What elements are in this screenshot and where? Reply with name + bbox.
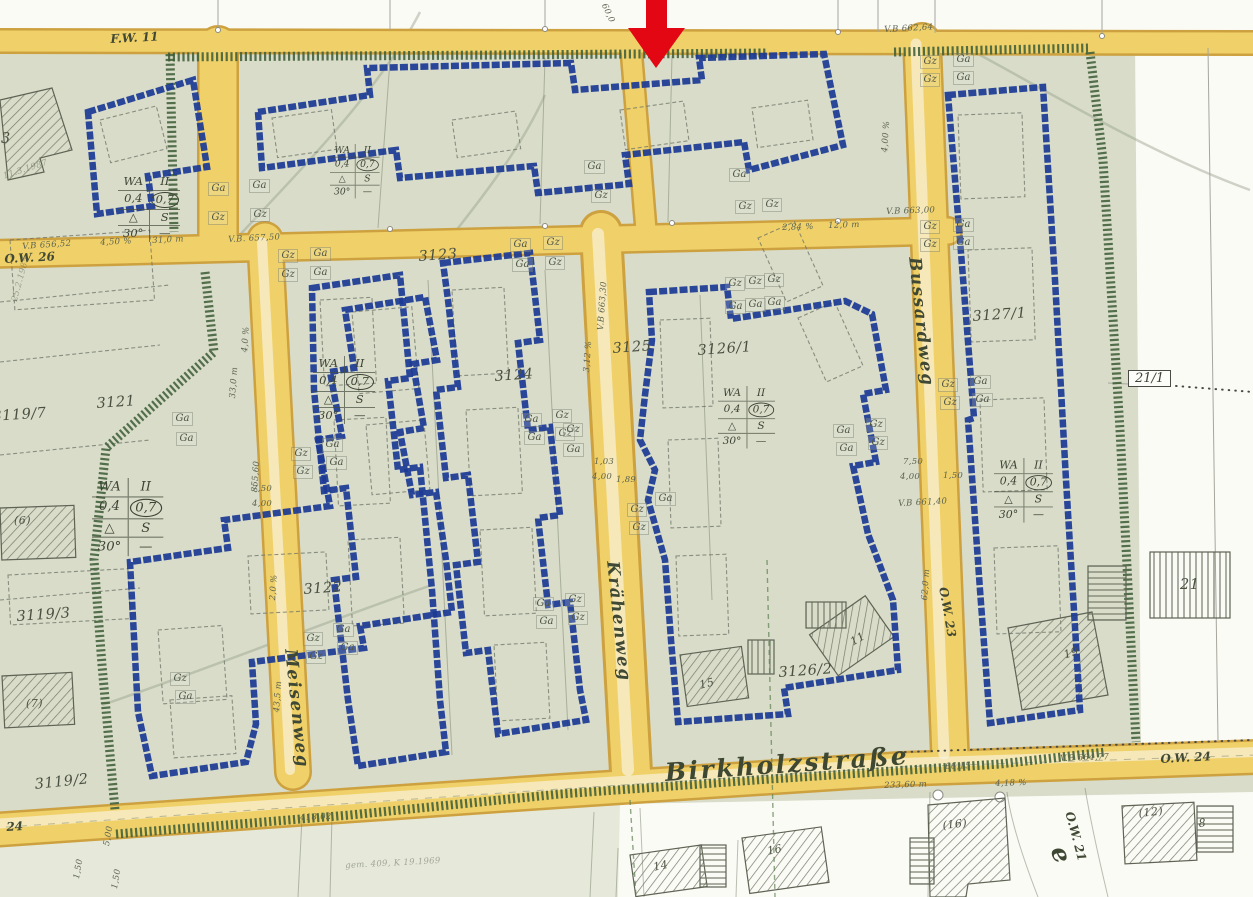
street-label: O.W. 23 (936, 586, 959, 638)
garage-label: Ga (337, 641, 358, 655)
zoning-signature-box: WAII0,40,7△S30°— (92, 478, 163, 556)
garage-label: Gz (764, 273, 784, 287)
dimension-label: 60,0 (599, 2, 617, 24)
zoning-value: — (150, 226, 181, 242)
zoning-value: — (128, 538, 163, 556)
garage-label: Ga (764, 296, 785, 310)
garage-label: Gz (920, 238, 940, 252)
zoning-value: S (1024, 492, 1053, 507)
dimension-label: 33,0 m (228, 367, 240, 399)
dimension-label: 7,50 (252, 484, 272, 494)
garage-label: Gz (303, 632, 323, 646)
garage-label: Gz (545, 256, 565, 270)
dimension-label: 2,84 % (782, 222, 814, 233)
garage-label: Ga (953, 236, 974, 250)
street-label: F.W. 11 (110, 29, 159, 46)
dimension-label: 5,00 (102, 825, 115, 847)
zoning-map: F.W. 11O.W. 26MeisenwegKrähenwegBussardw… (0, 0, 1253, 897)
zoning-value: 0,7 (150, 191, 181, 209)
dimension-label: 62,0 m (920, 569, 932, 601)
garage-label: Gz (278, 249, 298, 263)
garage-label: Ga (655, 492, 676, 506)
zoning-value: 30° (994, 508, 1024, 523)
garage-label: Ga (836, 442, 857, 456)
parcel-label: 3126/1 (697, 339, 752, 359)
parcel-label: 16 (766, 842, 783, 858)
zoning-value: 0,4 (994, 474, 1024, 491)
garage-label: Gz (940, 396, 960, 410)
garage-label: Gz (920, 220, 940, 234)
dimension-label: 4,18 % (995, 778, 1027, 789)
zoning-value: 30° (718, 434, 747, 449)
parcel-label: 3 (1, 131, 11, 147)
garage-label: Gz (208, 211, 228, 225)
garage-label: Ga (172, 412, 193, 426)
garage-label: Ga (524, 431, 545, 445)
zoning-value: 0,4 (718, 401, 747, 417)
garage-label: Ga (725, 300, 746, 314)
parcel-label: 21 (1180, 577, 1199, 593)
zoning-signature-box: WAII0,40,7△S30°— (118, 174, 180, 242)
garage-label: Gz (293, 465, 313, 479)
zoning-value: — (355, 186, 379, 199)
zoning-value: 30° (330, 186, 355, 199)
parcel-label: (6) (14, 514, 31, 527)
noise-triangle-icon: △ (118, 210, 150, 226)
zoning-value: 0,7 (128, 497, 163, 517)
garage-label: Ga (326, 456, 347, 470)
zoning-value: 0,7 (747, 401, 775, 417)
dimension-label: 1,03 (594, 457, 614, 467)
zoning-value: 0,4 (92, 497, 128, 517)
garage-label: Ga (953, 53, 974, 67)
dimension-label: 4,00 (900, 472, 920, 482)
dimension-label: V.B 661,40 (898, 496, 948, 509)
parcel-label: 3125 (612, 338, 652, 357)
garage-label: Ga (510, 238, 531, 252)
dimension-label: 4,00 % (880, 121, 892, 153)
dimension-label: 1,50 (72, 858, 85, 880)
garage-label: Ga (584, 160, 605, 174)
dimension-label: V.B 664,77 (1060, 752, 1109, 764)
zoning-value: II (345, 356, 376, 372)
garage-label: Ga (970, 375, 991, 389)
zoning-value: 0,4 (118, 191, 150, 209)
garage-label: Gz (627, 503, 647, 517)
zoning-value: S (150, 210, 181, 226)
garage-label: Ga (512, 258, 533, 272)
parcel-label: 3119/7 (0, 405, 47, 425)
garage-label: Ga (729, 168, 750, 182)
garage-label: Gz (170, 672, 190, 686)
parcel-label: 3126/2 (778, 661, 833, 681)
dimension-label: V.B 663,00 (886, 205, 935, 217)
street-label: Birkholzstraße (664, 741, 910, 787)
dimension-label: 1,50 (943, 471, 963, 481)
street-label: Meisenweg (280, 648, 312, 769)
parcel-label: 11 (848, 630, 867, 649)
zoning-value: 0,7 (1024, 474, 1053, 491)
parcel-label: 14 (652, 858, 669, 874)
garage-label: Gz (563, 423, 583, 437)
garage-label: Ga (521, 413, 542, 427)
garage-label: Ga (953, 218, 974, 232)
garage-label: Gz (920, 55, 940, 69)
parcel-label: (16) (942, 816, 968, 831)
zoning-signature-box: WAII0,40,7△S30°— (994, 458, 1053, 523)
garage-label: Ga (333, 623, 354, 637)
noise-triangle-icon: △ (330, 172, 355, 185)
zoning-value: 0,7 (355, 157, 379, 171)
label-layer: F.W. 11O.W. 26MeisenwegKrähenwegBussardw… (0, 0, 1253, 897)
zoning-value: WA (92, 478, 128, 496)
street-label: Krähenweg (602, 560, 635, 683)
dimension-label: 2,0 % (268, 574, 280, 600)
noise-triangle-icon: △ (92, 519, 128, 537)
zoning-signature-box: WAII0,40,7△S30°— (313, 356, 375, 424)
zoning-value: II (747, 386, 775, 401)
garage-label: Gz (565, 593, 585, 607)
zoning-value: II (1024, 458, 1053, 473)
garage-label: Ga (175, 690, 196, 704)
zoning-signature-box: WAII0,40,7△S30°— (718, 386, 775, 449)
zoning-value: 30° (92, 538, 128, 556)
garage-label: Ga (972, 393, 993, 407)
zoning-value: S (128, 519, 163, 537)
garage-label: Ga (833, 424, 854, 438)
garage-label: Gz (291, 447, 311, 461)
zoning-value: II (128, 478, 163, 496)
zoning-value: WA (313, 356, 345, 372)
parcel-label: (7) (26, 697, 43, 710)
garage-label: Gz (762, 198, 782, 212)
garage-label: Gz (543, 236, 563, 250)
zoning-value: 0,4 (330, 157, 355, 171)
street-label: O.W. 24 (1160, 749, 1211, 766)
garage-label: Gz (866, 418, 886, 432)
parcel-label: 3121 (96, 393, 136, 412)
zoning-value: WA (118, 174, 150, 190)
zoning-value: — (747, 434, 775, 449)
dimension-label: 7,50 (903, 457, 923, 467)
parcel-label: 15 (698, 675, 716, 691)
dimension-label: 233,60 m (884, 780, 927, 791)
dimension-label: 4,0 % (240, 326, 252, 352)
garage-label: Gz (552, 409, 572, 423)
garage-label: Ga (745, 298, 766, 312)
dimension-label: 11.3.1987 (2, 158, 49, 182)
dimension-label: 1,50 (110, 868, 123, 890)
parcel-label: 3123 (418, 246, 458, 265)
zoning-value: II (150, 174, 181, 190)
zoning-value: 0,4 (313, 373, 345, 391)
zoning-value: 0,7 (345, 373, 376, 391)
garage-label: Gz (745, 275, 765, 289)
zoning-value: — (1024, 508, 1053, 523)
garage-label: Gz (938, 378, 958, 392)
dimension-label: 66,15 (945, 761, 971, 772)
parcel-label: 3122 (303, 579, 343, 598)
zoning-value: WA (994, 458, 1024, 473)
parcel-label: 3119/2 (34, 771, 89, 793)
dimension-label: 43,5 m (272, 681, 284, 713)
garage-label: Ga (249, 179, 270, 193)
parcel-label: 3124 (494, 366, 534, 385)
zoning-value: S (345, 392, 376, 408)
garage-label: Gz (591, 189, 611, 203)
garage-label: Ga (536, 615, 557, 629)
street-label: 24 (6, 819, 23, 834)
dimension-label: 1,89 (616, 475, 636, 485)
zoning-value: S (747, 419, 775, 434)
zoning-value: — (345, 408, 376, 424)
garage-label: Gz (306, 650, 326, 664)
dimension-label: V.B 663,30 (596, 281, 609, 331)
garage-label: Ga (176, 432, 197, 446)
zoning-value: 30° (313, 408, 345, 424)
dimension-label: 418,02 (300, 812, 332, 823)
garage-label: Ga (322, 438, 343, 452)
garage-label: Ga (310, 266, 331, 280)
street-label: Bussardweg (904, 256, 937, 387)
parcel-label: 19 (1062, 644, 1080, 661)
garage-label: Ga (533, 597, 554, 611)
parcel-label: 8 (1198, 816, 1207, 830)
garage-label: Gz (568, 611, 588, 625)
dimension-label: V.B 662,64 (884, 22, 934, 35)
garage-label: Gz (735, 200, 755, 214)
garage-label: Ga (563, 443, 584, 457)
noise-triangle-icon: △ (718, 419, 747, 434)
garage-label: Gz (920, 73, 940, 87)
garage-label: Ga (310, 247, 331, 261)
garage-label: Gz (278, 268, 298, 282)
dimension-label: 12,0 m (828, 220, 860, 231)
zoning-value: 30° (118, 226, 150, 242)
zoning-value: WA (718, 386, 747, 401)
parcel-label: 3119/3 (16, 605, 71, 625)
dimension-label: V.B. 657,50 (228, 232, 280, 245)
dimension-label: gem. 409, K 19.1969 (345, 856, 441, 871)
parcel-label: 3127/1 (972, 305, 1027, 325)
garage-label: Ga (953, 71, 974, 85)
dimension-label: 4,00 (592, 472, 612, 482)
parcel-ref-box: 21/1 (1128, 370, 1171, 387)
garage-label: Gz (725, 277, 745, 291)
noise-triangle-icon: △ (994, 492, 1024, 507)
dimension-label: 3,12 % (582, 341, 594, 373)
garage-label: Ga (208, 182, 229, 196)
garage-label: Gz (629, 521, 649, 535)
street-label: e (1045, 842, 1079, 869)
zoning-signature-box: WAII0,40,7△S30°— (330, 144, 380, 199)
dimension-label: V.B 656,52 (22, 239, 72, 252)
parcel-label: (12) (1138, 804, 1164, 819)
garage-label: Gz (868, 436, 888, 450)
dimension-label: 4,00 (252, 499, 272, 509)
zoning-value: II (355, 144, 379, 157)
zoning-value: WA (330, 144, 355, 157)
noise-triangle-icon: △ (313, 392, 345, 408)
zoning-value: S (355, 172, 379, 185)
garage-label: Gz (250, 208, 270, 222)
